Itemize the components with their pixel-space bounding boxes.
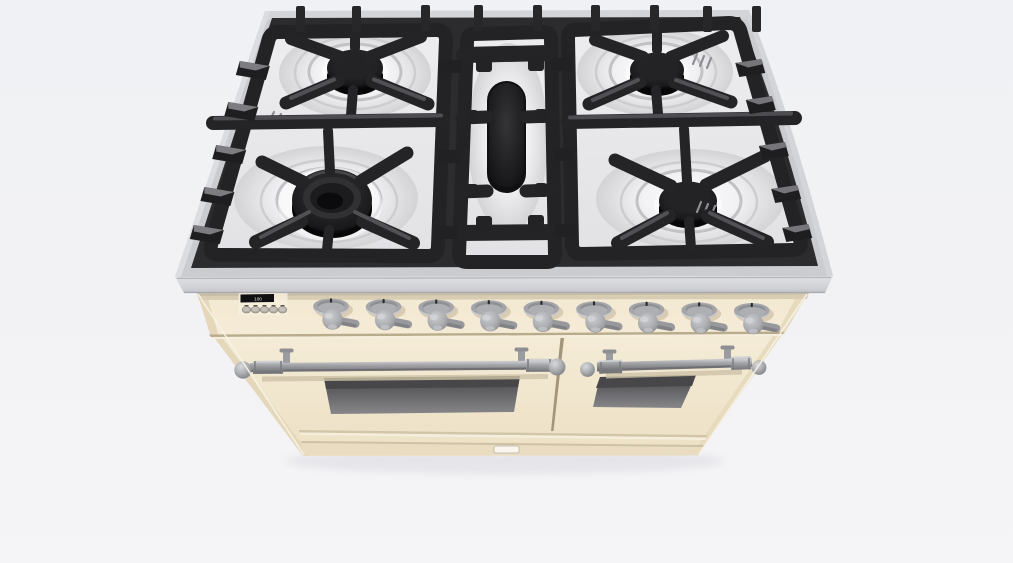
svg-text:100: 100 bbox=[254, 297, 262, 302]
